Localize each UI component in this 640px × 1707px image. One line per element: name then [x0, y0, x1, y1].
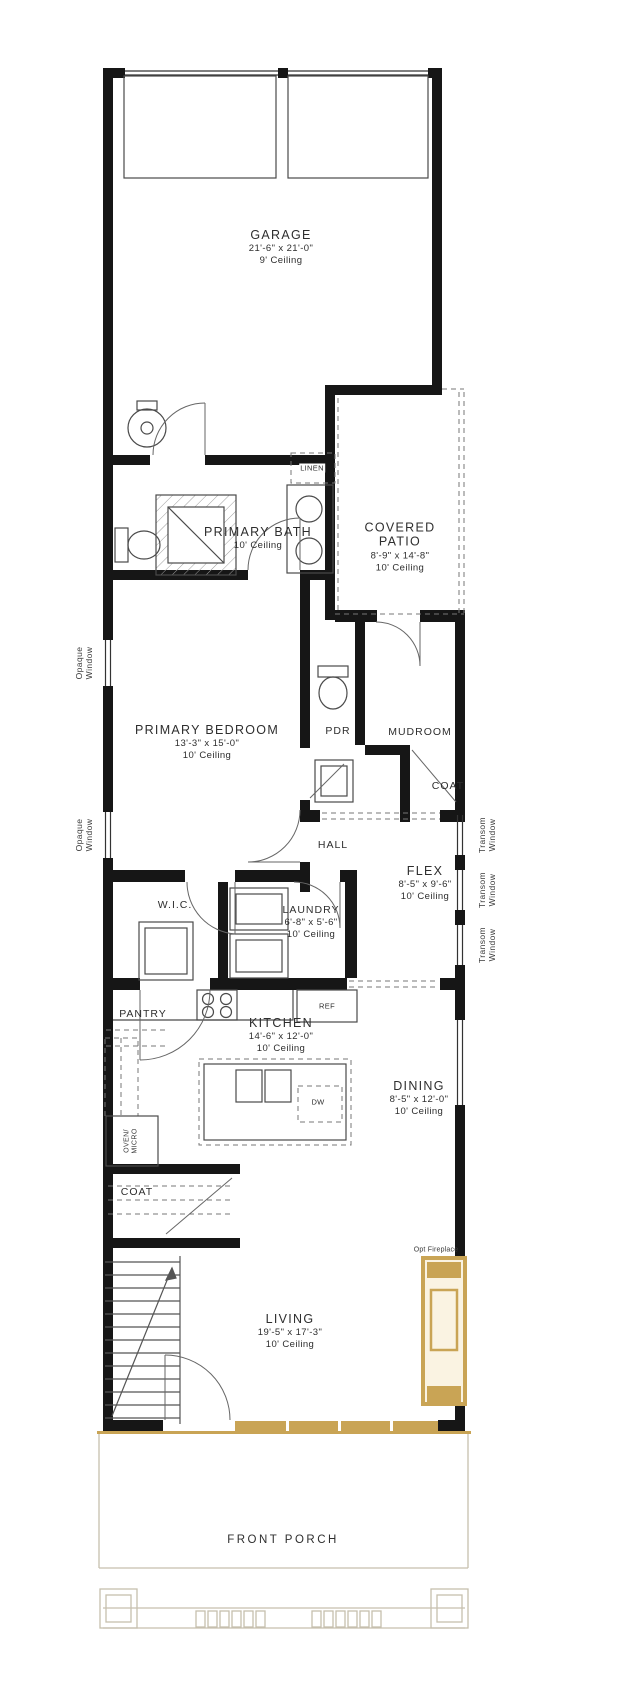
- room-label-laundry: LAUNDRY 6'-8" x 5'-6" 10' Ceiling: [283, 904, 340, 940]
- room-label-flex: FLEX 8'-5" x 9'-6" 10' Ceiling: [398, 864, 451, 902]
- door-arc: [140, 990, 210, 1060]
- door-arc: [153, 403, 205, 455]
- room-label-coat-upper: COAT: [432, 780, 464, 792]
- room-label-pdr: PDR: [325, 725, 350, 737]
- label-dw: DW: [310, 1098, 325, 1107]
- porch-balusters-icon: [196, 1611, 381, 1627]
- transom-window-icon: [458, 815, 463, 965]
- stairs-icon: [105, 1256, 180, 1424]
- island-sink-icon: [265, 1070, 291, 1102]
- room-label-covered-patio: COVERED PATIO 8'-9" x 14'-8" 10' Ceiling: [359, 521, 441, 574]
- garage-door-icon: [124, 76, 276, 178]
- door-arc: [165, 1355, 230, 1420]
- room-label-coat-lower: COAT: [121, 1186, 153, 1198]
- room-label-kitchen: KITCHEN 14'-6" x 12'-0" 10' Ceiling: [249, 1016, 313, 1054]
- label-opt-fireplace: Opt Fireplace: [414, 1247, 459, 1254]
- porch-outline: [99, 1434, 468, 1628]
- toilet-icon: [115, 528, 160, 562]
- toilet-icon: [318, 666, 348, 709]
- room-label-primary-bedroom: PRIMARY BEDROOM 13'-3" x 15'-0" 10' Ceil…: [135, 723, 279, 761]
- room-label-hall: HALL: [318, 839, 348, 851]
- label-linen: LINEN: [299, 464, 325, 473]
- window-label-opaque-2: Opaque Window: [74, 819, 94, 852]
- room-label-pantry: PANTRY: [119, 1008, 167, 1020]
- door-arc: [248, 810, 300, 862]
- floorplan-linework: [0, 0, 640, 1707]
- window-label-transom-3: Transom Window: [477, 927, 497, 963]
- room-label-front-porch: FRONT PORCH: [227, 1534, 339, 1546]
- garage-door-icon: [288, 76, 428, 178]
- label-ref: REF: [318, 1002, 336, 1011]
- label-oven-micro: OVEN/ MICRO: [124, 1128, 141, 1153]
- cooktop-icon: [197, 990, 237, 1020]
- closet-island-icon: [139, 922, 193, 980]
- island-sink-icon: [236, 1070, 262, 1102]
- dining-window-icon: [458, 1020, 463, 1105]
- room-label-primary-bath: PRIMARY BATH 10' Ceiling: [204, 525, 312, 551]
- windows: [103, 68, 463, 1105]
- room-label-living: LIVING 19'-5" x 17'-3" 10' Ceiling: [258, 1312, 322, 1350]
- room-label-dining: DINING 8'-5" x 12'-0" 10' Ceiling: [390, 1079, 449, 1117]
- window-label-opaque-1: Opaque Window: [74, 647, 94, 680]
- window-label-transom-2: Transom Window: [477, 872, 497, 908]
- window-label-transom-1: Transom Window: [477, 817, 497, 853]
- sink-icon: [315, 760, 353, 802]
- fireplace-icon: [423, 1258, 465, 1404]
- door-arc: [376, 622, 420, 666]
- door-leaf: [412, 750, 456, 802]
- room-label-mudroom: MUDROOM: [388, 726, 452, 738]
- washer-dryer-icon: [230, 888, 288, 978]
- room-label-wic: W.I.C.: [158, 899, 193, 911]
- water-heater-icon: [128, 401, 166, 447]
- room-label-garage: GARAGE 21'-6" x 21'-0" 9' Ceiling: [249, 228, 313, 266]
- patio-outline: [335, 389, 464, 614]
- floor-plan: GARAGE 21'-6" x 21'-0" 9' Ceiling PRIMAR…: [0, 0, 640, 1707]
